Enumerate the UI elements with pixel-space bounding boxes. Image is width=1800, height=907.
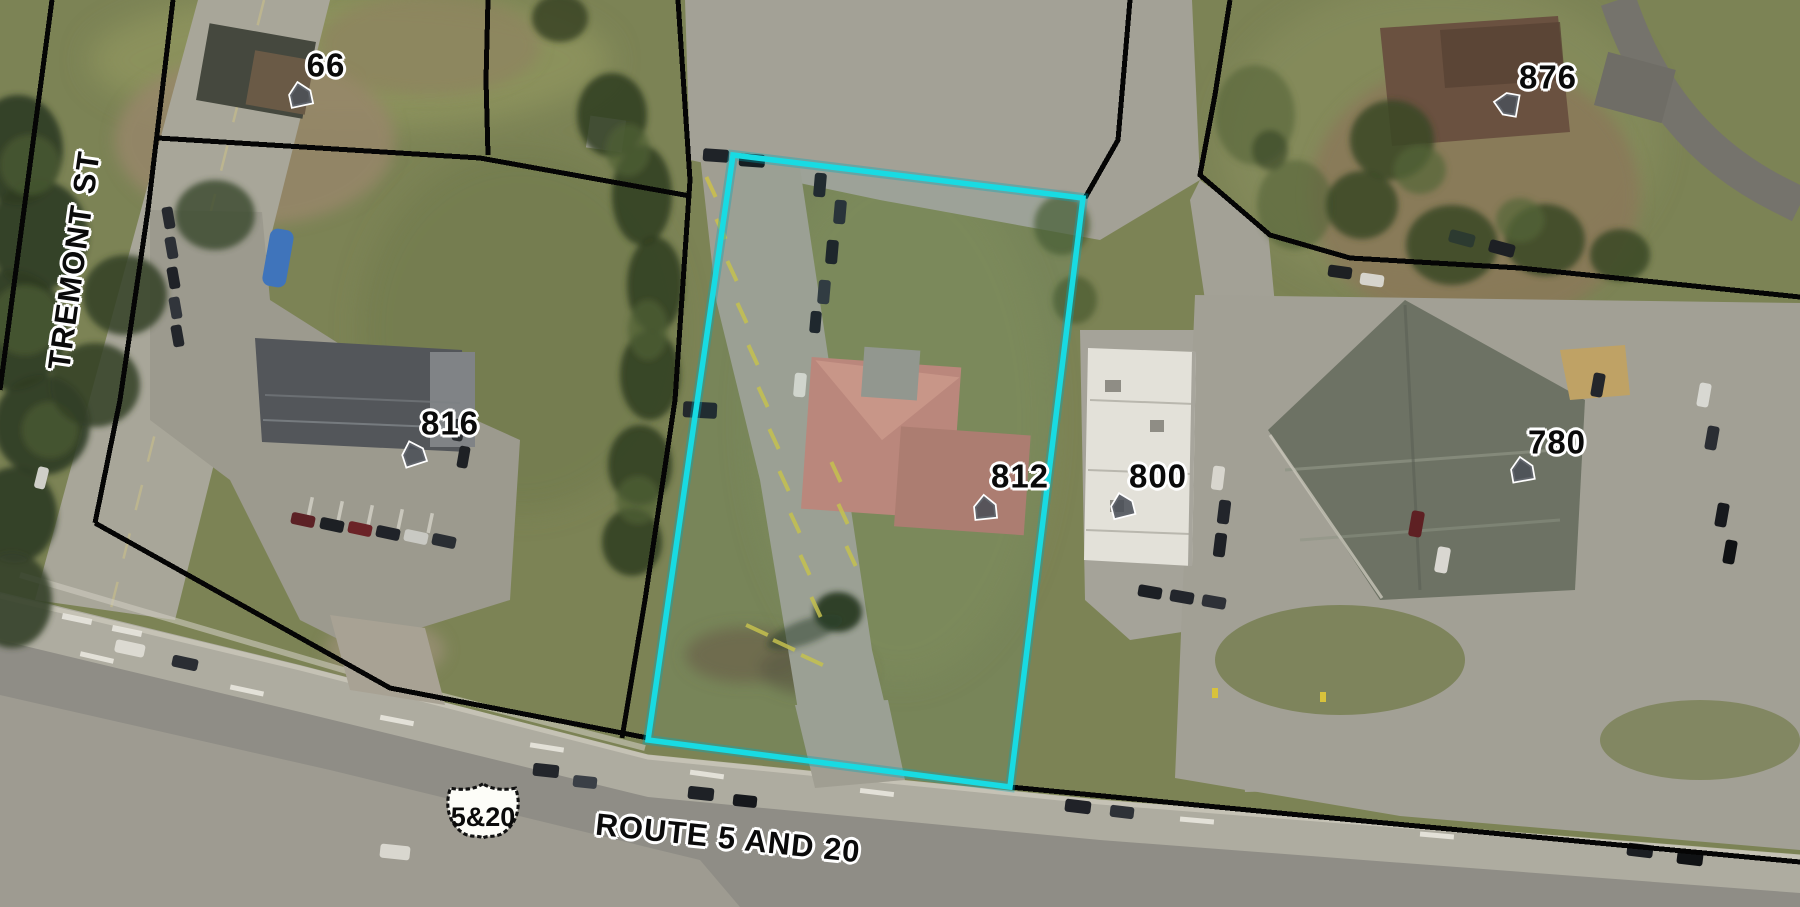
us-route-shield: 5&20 xyxy=(439,779,527,843)
route-shield-text: 5&20 xyxy=(439,785,527,849)
address-label-816: 816 xyxy=(421,407,479,440)
address-label-780: 780 xyxy=(1528,426,1586,459)
address-label-800: 800 xyxy=(1129,460,1187,493)
map-canvas[interactable]: 66 876 816 812 800 780 TREMONT ST ROUTE … xyxy=(0,0,1800,907)
address-label-66: 66 xyxy=(307,49,346,82)
address-label-812: 812 xyxy=(991,460,1049,493)
address-label-876: 876 xyxy=(1519,61,1577,94)
